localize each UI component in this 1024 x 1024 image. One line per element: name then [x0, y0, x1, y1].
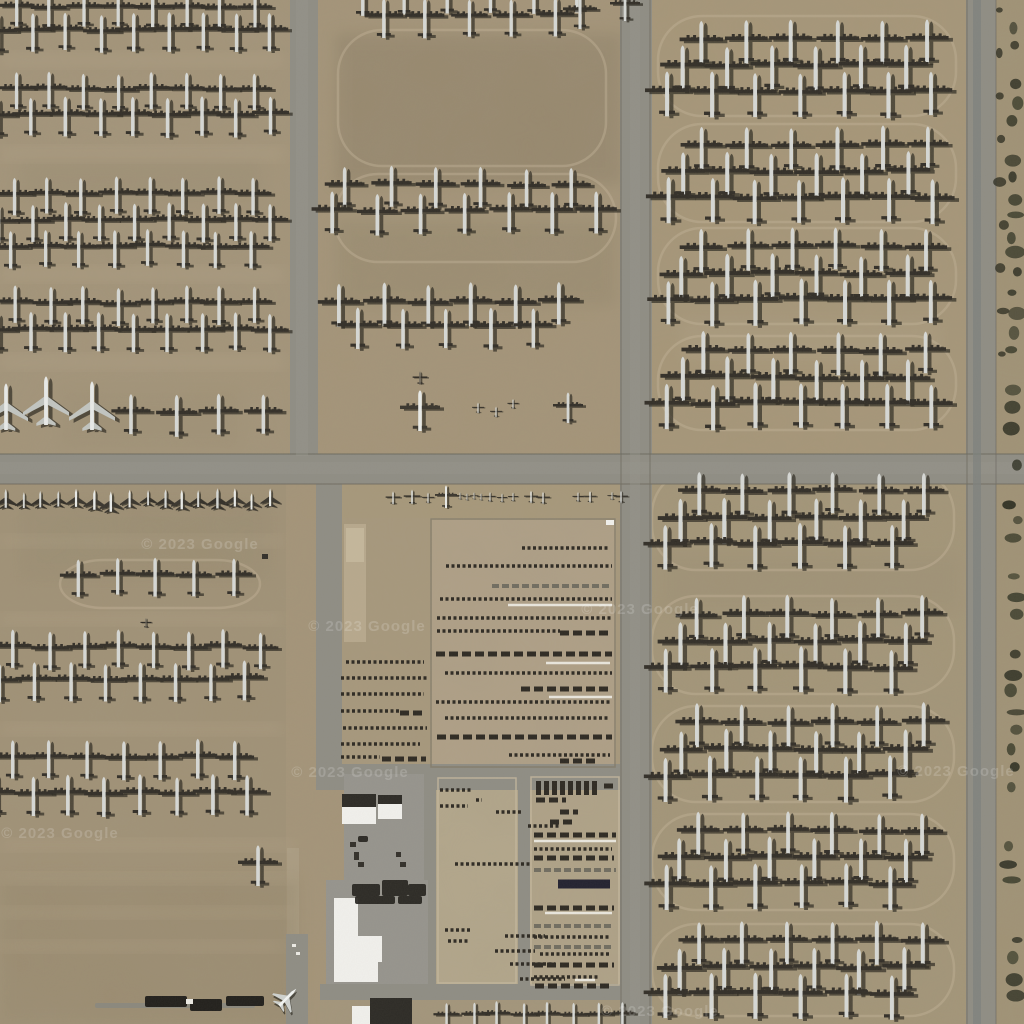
google-watermark: © 2023 Google	[291, 764, 408, 781]
texture-overlay-layer	[0, 0, 1024, 1024]
satellite-map-viewport[interactable]: © 2023 Google© 2023 Google© 2023 Google©…	[0, 0, 1024, 1024]
google-watermark: © 2023 Google	[308, 618, 425, 635]
google-watermark: © 2023 Google	[581, 601, 698, 618]
google-watermark: © 2023 Google	[1, 825, 118, 842]
satellite-imagery-canvas[interactable]: © 2023 Google© 2023 Google© 2023 Google©…	[0, 0, 1024, 1024]
google-watermark: © 2023 Google	[141, 536, 258, 553]
google-watermark: © 2023 Google	[897, 763, 1014, 780]
google-watermark: © 2023 Google	[601, 1003, 718, 1020]
photo-grain	[0, 0, 1024, 1024]
